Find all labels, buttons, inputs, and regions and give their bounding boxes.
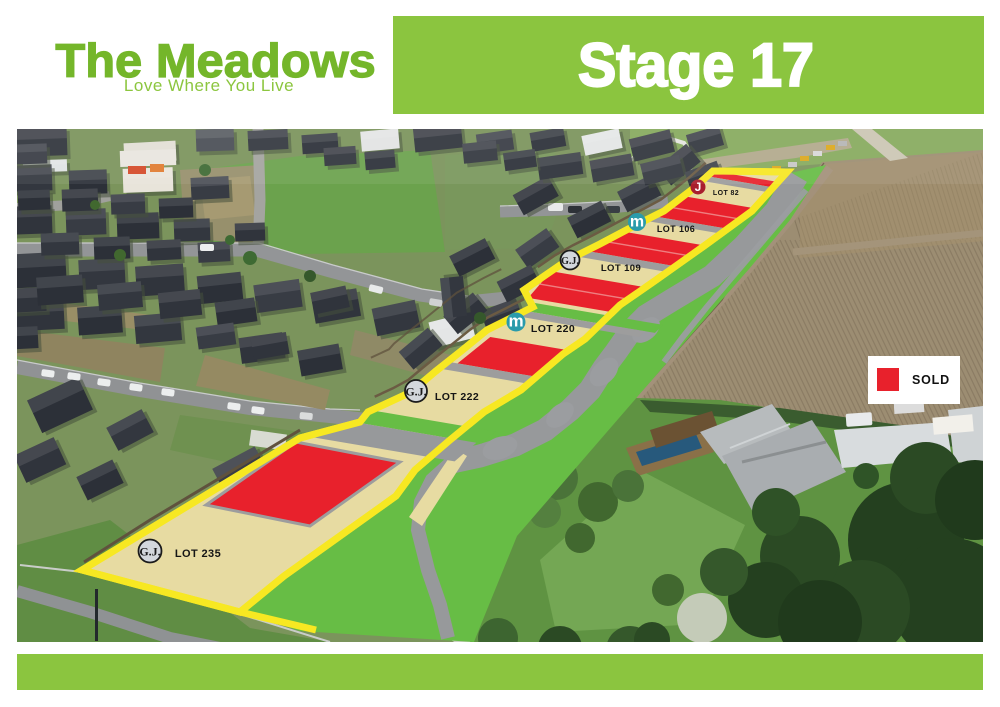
svg-text:m: m: [508, 312, 523, 331]
svg-text:LOT 235: LOT 235: [175, 548, 221, 560]
svg-text:m: m: [630, 213, 644, 230]
svg-text:SOLD: SOLD: [912, 373, 950, 387]
svg-text:LOT 222: LOT 222: [435, 391, 479, 403]
svg-text:G.J.: G.J.: [561, 256, 579, 267]
svg-text:LOT 109: LOT 109: [601, 263, 641, 274]
svg-text:G.J.: G.J.: [139, 545, 160, 559]
svg-text:G.J.: G.J.: [405, 384, 426, 398]
svg-text:LOT 220: LOT 220: [531, 323, 575, 335]
svg-text:LOT 82: LOT 82: [713, 190, 739, 197]
svg-text:LOT 106: LOT 106: [657, 224, 695, 234]
